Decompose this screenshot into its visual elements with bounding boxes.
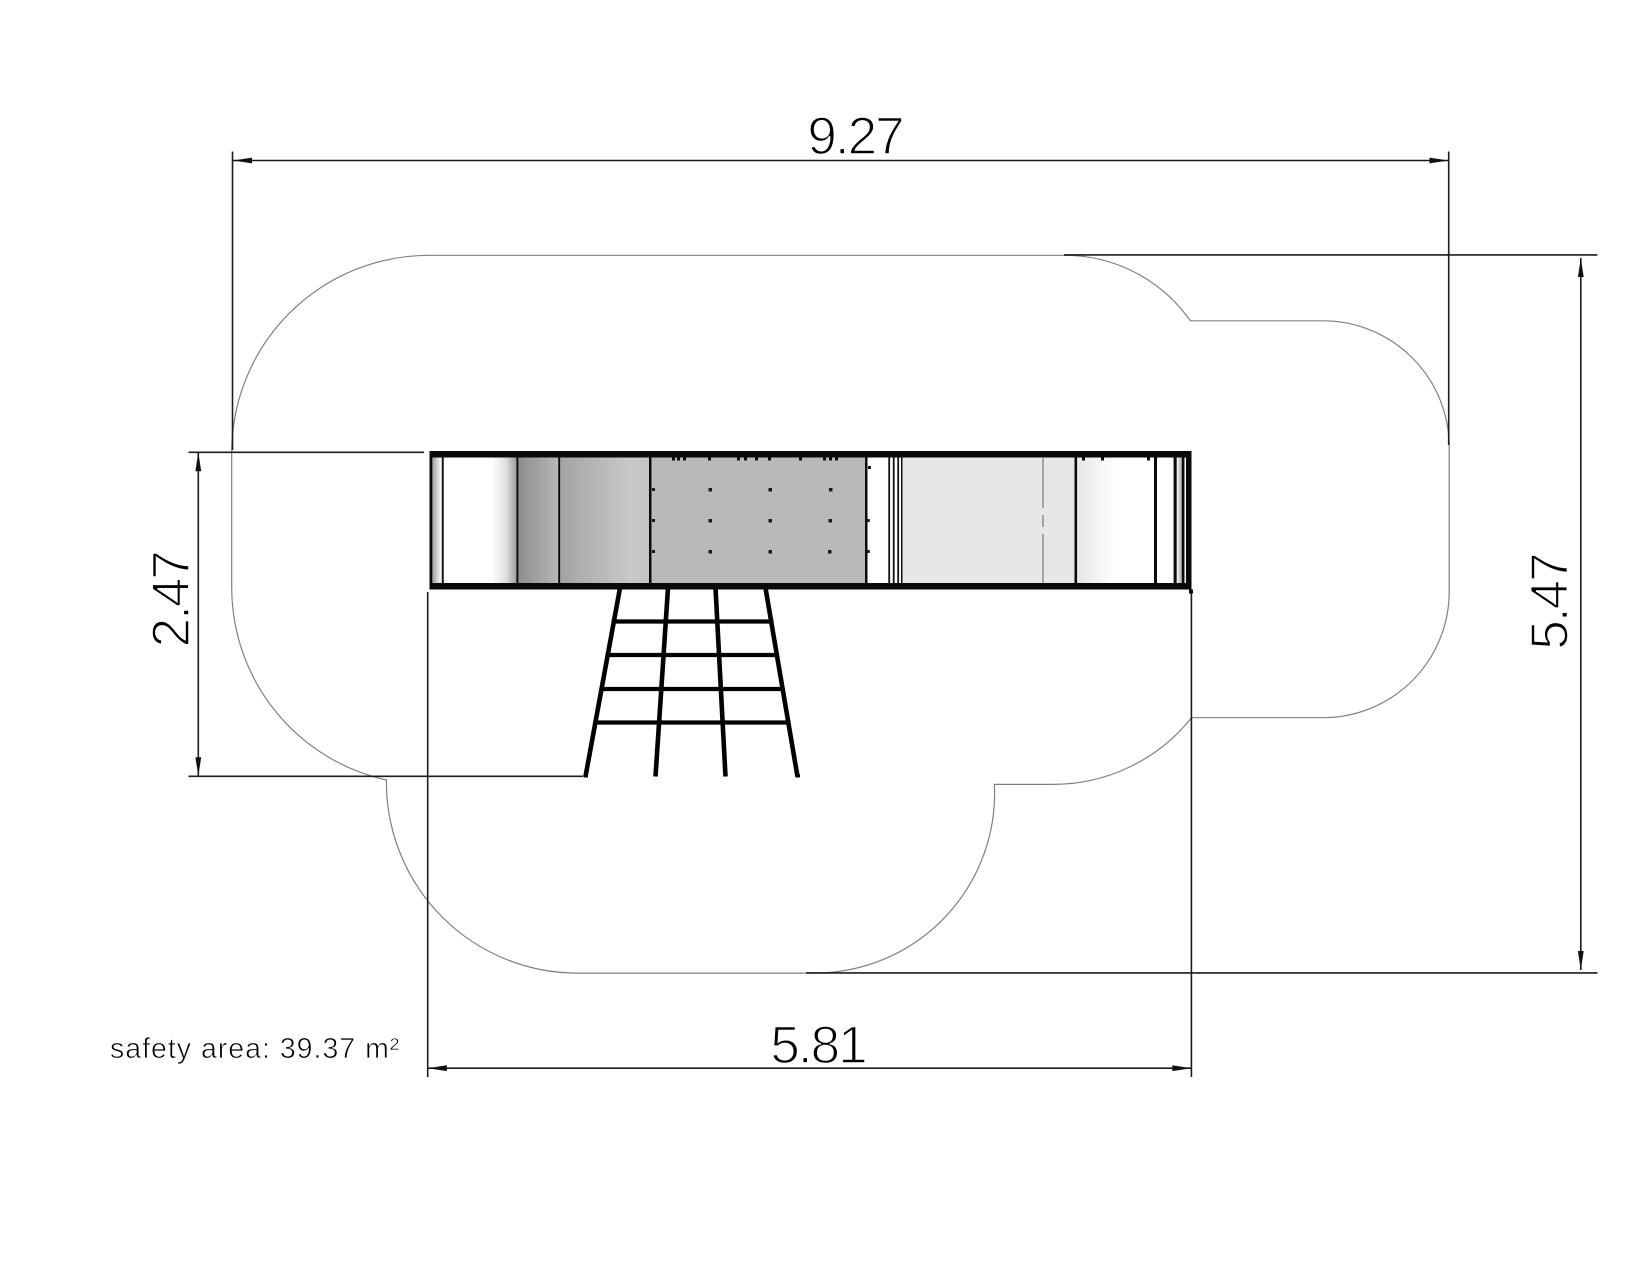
svg-text:5.47: 5.47 (1521, 554, 1580, 649)
svg-text:safety area: 39.37 m²: safety area: 39.37 m² (110, 1033, 400, 1065)
svg-text:2.47: 2.47 (142, 552, 201, 647)
svg-text:9.27: 9.27 (807, 107, 902, 166)
svg-text:5.81: 5.81 (770, 1016, 865, 1075)
